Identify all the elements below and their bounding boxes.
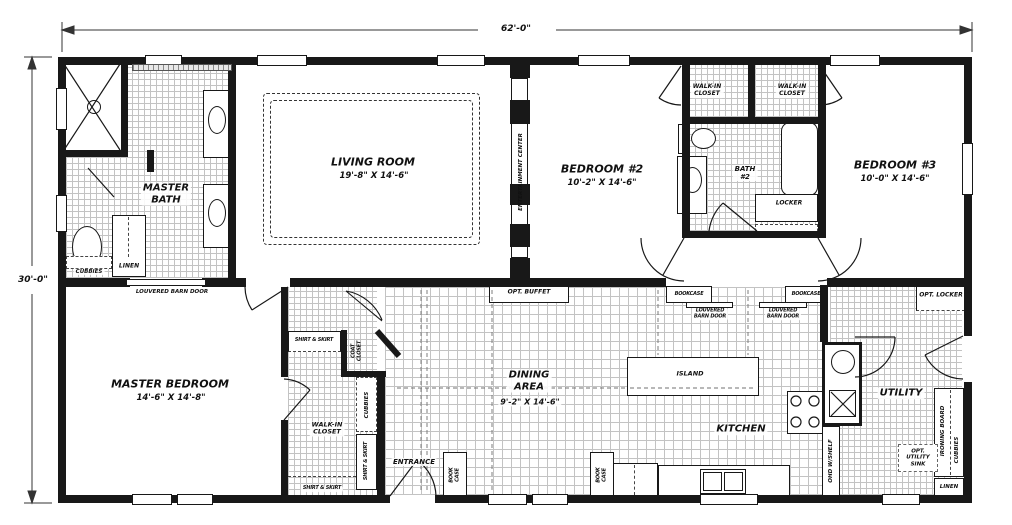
master-wic-label: WALK-IN CLOSET <box>310 422 345 437</box>
wic2-left-label: WALK-IN CLOSET <box>691 84 724 98</box>
living-room-size: 19'-8" X 14'-6" <box>339 172 408 182</box>
ohd-shelf-label: OHD W/SHELF <box>828 439 834 482</box>
master-bedroom-size: 14'-6" X 14'-8" <box>136 394 205 404</box>
utility-exterior-door <box>925 336 963 379</box>
bookcase-bottom-1-label: BOOK CASE <box>449 467 461 482</box>
wic2-right-label: WALK-IN CLOSET <box>776 84 809 98</box>
cubbies-utility-label: CUBBIES <box>954 437 960 464</box>
ironing-board-label: IRONING BOARD <box>940 406 946 457</box>
opt-buffet-label: OPT. BUFFET <box>508 290 551 297</box>
barn-door-hall-left-label: LOUVERED BARN DOOR <box>692 308 728 320</box>
master-bedroom-label: MASTER BEDROOM <box>111 379 229 392</box>
opt-locker-label: OPT. LOCKER <box>919 293 962 300</box>
bath2-label: BATH #2 <box>733 165 758 181</box>
wic2-right-door <box>820 66 842 105</box>
island-label: ISLAND <box>676 370 703 377</box>
linen-utility-label: LINEN <box>940 484 959 490</box>
dim-arrow-top-left <box>62 26 74 34</box>
dining-area-label: DINING AREA <box>507 370 552 393</box>
shirt-skirt-bottom-label: SHIRT & SKIRT <box>301 486 343 492</box>
dryer-x <box>831 392 855 416</box>
bookcase-left-label: BOOKCASE <box>675 292 704 298</box>
entertainment-center-label: ENTERTAINMENT CENTER <box>518 133 524 211</box>
utility-interior-door <box>855 337 895 377</box>
dim-depth-label: 30'-0" <box>16 274 50 286</box>
dim-width-label: 62'-0" <box>497 24 535 34</box>
burner-2 <box>809 396 819 406</box>
burner-3 <box>791 417 801 427</box>
bookcase-right-label: BOOKCASE <box>792 292 821 298</box>
bath2-door <box>709 203 757 231</box>
bedroom3-label: BEDROOM #3 <box>854 160 936 173</box>
dim-arrow-left-top <box>28 57 36 69</box>
plan-linework <box>0 0 1012 525</box>
dim-arrow-left-bottom <box>28 491 36 503</box>
linen-masterbath-label: LINEN <box>117 264 141 271</box>
toilet-room-door-leaf <box>88 168 114 197</box>
coat-closet-door <box>346 291 382 321</box>
hall-door-right <box>818 238 861 281</box>
shower-x <box>64 64 120 150</box>
locker-label: LOCKER <box>776 201 802 208</box>
coat-closet-angled-wall <box>377 331 399 356</box>
opt-utility-sink-label: OPT. UTILITY SINK <box>904 449 932 468</box>
living-room-label: LIVING ROOM <box>331 157 415 170</box>
master-wic-door <box>284 379 310 420</box>
master-bath-label: MASTER BATH <box>141 183 191 206</box>
barn-door-hall-right-label: LOUVERED BARN DOOR <box>765 308 801 320</box>
burner-1 <box>791 396 801 406</box>
hall-door-left <box>641 238 684 281</box>
bedroom2-label: BEDROOM #2 <box>561 164 643 177</box>
wic2-left-door <box>659 66 681 105</box>
kitchen-label: KITCHEN <box>714 423 767 435</box>
utility-label: UTILITY <box>878 387 925 399</box>
burner-4 <box>809 417 819 427</box>
shirt-skirt-top-label: SHIRT & SKIRT <box>293 338 335 344</box>
entrance-label: ENTRANCE <box>391 458 437 466</box>
cubbies-closet-label: CUBBIES <box>364 392 370 419</box>
dim-arrow-top-right <box>960 26 972 34</box>
bedroom2-size: 10'-2" X 14'-6" <box>567 179 636 189</box>
bedroom3-size: 10'-0" X 14'-6" <box>860 175 929 185</box>
masterbed-door <box>245 287 288 310</box>
shirt-skirt-side-label: SHIRT & SKIRT <box>364 442 370 480</box>
dining-area-size: 9'-2" X 14'-6" <box>498 397 561 406</box>
cubbies-masterbath-label: CUBBIES <box>74 269 105 275</box>
floor-plan: 62'-0" 30'-0" MASTER BATH CUBBIES LINEN … <box>0 0 1012 525</box>
barn-door-masterbath-label: LOUVERED BARN DOOR <box>136 289 208 295</box>
bookcase-bottom-2-label: BOOK CASE <box>596 467 608 482</box>
coat-closet-label: COAT CLOSET <box>351 341 363 361</box>
